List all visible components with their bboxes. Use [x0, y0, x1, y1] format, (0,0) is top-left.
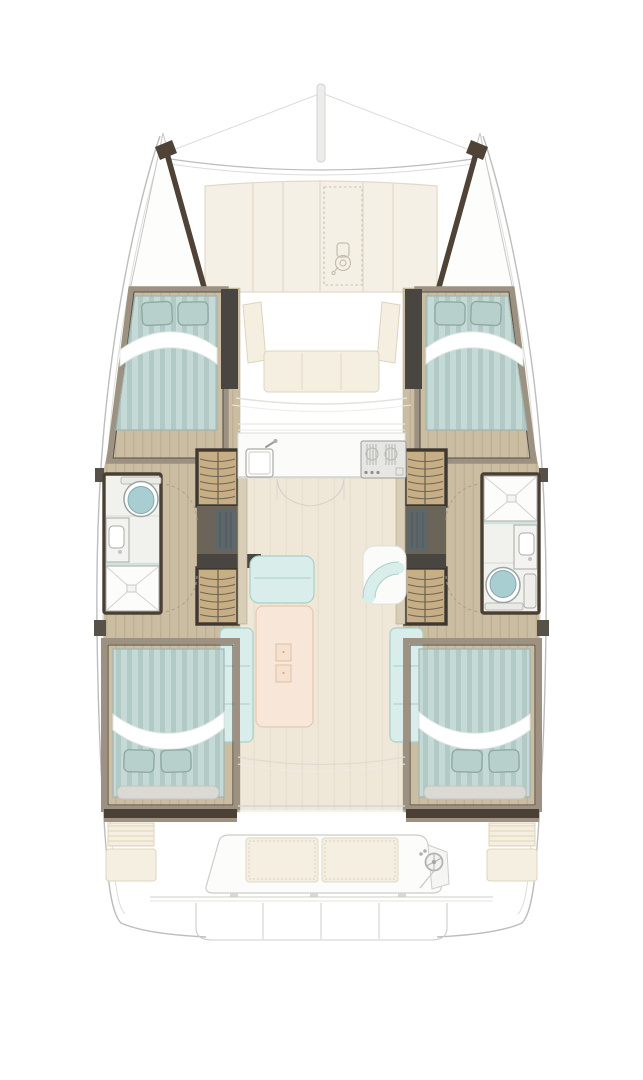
shower-icon [484, 476, 537, 521]
aft-bench-cushion [246, 838, 318, 882]
bridle-line [168, 94, 319, 152]
mast-icon [317, 84, 325, 162]
stove-icon [361, 441, 406, 478]
aft-cockpit [206, 835, 449, 897]
nav-chaise [363, 546, 406, 604]
bathroom-port [104, 474, 161, 613]
salon-sofa [250, 556, 314, 603]
rig [168, 84, 475, 162]
transom [150, 897, 493, 940]
bathroom-starboard [482, 474, 539, 613]
vanity-sink-icon [106, 518, 129, 562]
floorplan-svg [0, 0, 643, 1080]
vanity-sink-icon [514, 525, 537, 569]
forward-cockpit [232, 302, 411, 412]
throttle-lever [423, 849, 427, 853]
bench-wing [243, 302, 266, 363]
bench-wing [377, 302, 400, 363]
coachroof-line [232, 405, 411, 412]
catamaran-floorplan [0, 0, 643, 1080]
shower-icon [106, 566, 159, 611]
forward-bench [264, 351, 379, 392]
towel-shelf [524, 574, 536, 608]
foredeck-sunpad [205, 181, 437, 292]
aft-bench-cushion [322, 838, 398, 882]
coachroof-line [236, 398, 407, 404]
bridle-line [324, 94, 475, 152]
throttle-lever [419, 852, 423, 856]
